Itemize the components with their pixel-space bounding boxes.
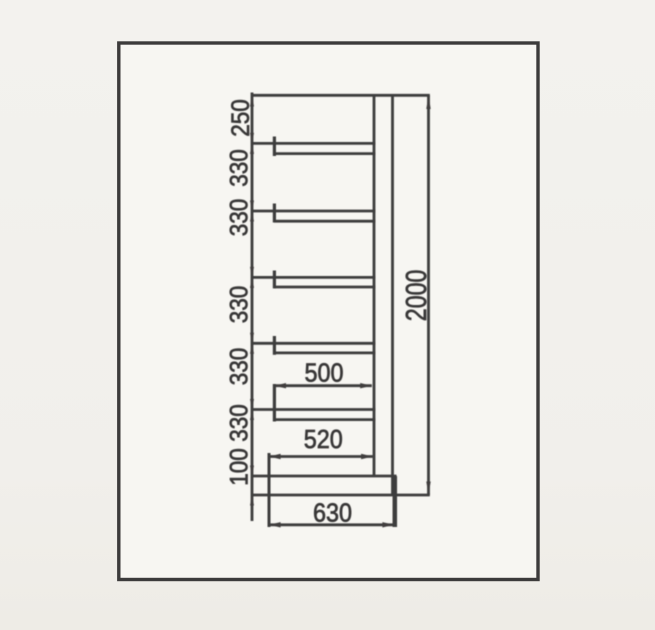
svg-text:250: 250 bbox=[227, 99, 255, 137]
svg-text:330: 330 bbox=[226, 404, 254, 442]
svg-text:500: 500 bbox=[304, 359, 343, 387]
svg-text:330: 330 bbox=[226, 149, 254, 187]
svg-text:330: 330 bbox=[226, 348, 254, 386]
svg-text:2000: 2000 bbox=[399, 270, 432, 322]
svg-text:100: 100 bbox=[226, 448, 254, 486]
svg-text:330: 330 bbox=[226, 286, 254, 324]
svg-text:630: 630 bbox=[313, 499, 352, 527]
svg-text:330: 330 bbox=[226, 199, 254, 237]
svg-text:520: 520 bbox=[304, 426, 343, 454]
